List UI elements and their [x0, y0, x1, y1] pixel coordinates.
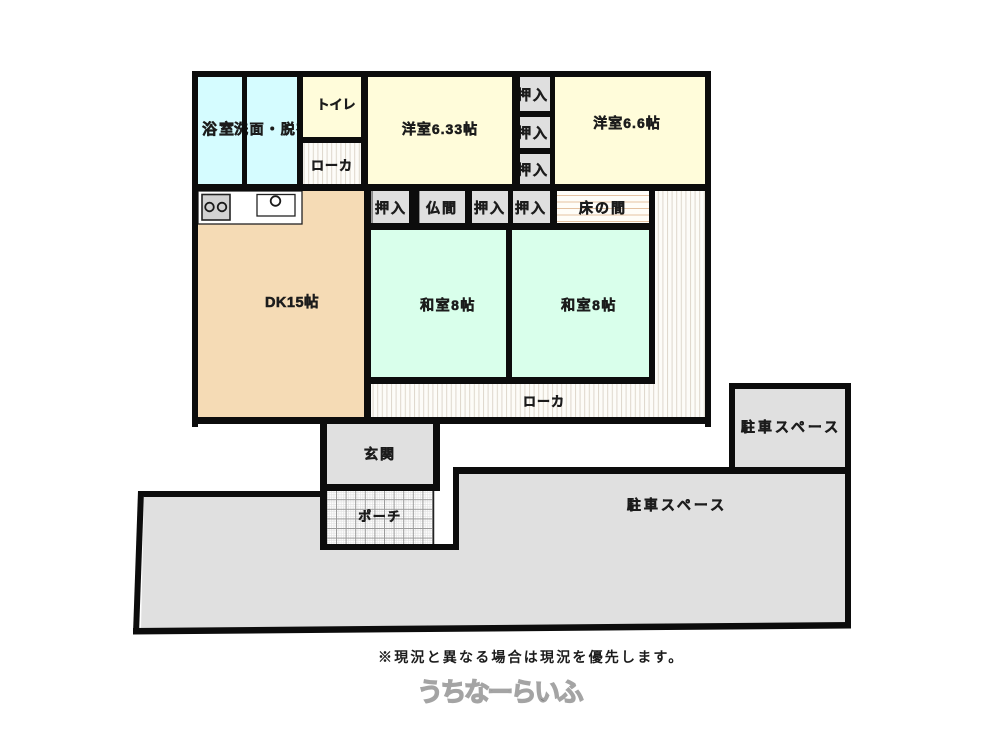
svg-text:トイレ: トイレ: [316, 97, 355, 112]
svg-text:玄関: 玄関: [364, 446, 396, 462]
svg-text:押入: 押入: [517, 87, 549, 103]
svg-text:うちなーらいふ: うちなーらいふ: [417, 677, 583, 707]
svg-text:洋室6.33帖: 洋室6.33帖: [402, 121, 478, 137]
svg-text:仏間: 仏間: [426, 200, 458, 216]
svg-text:ローカ: ローカ: [311, 158, 353, 173]
svg-text:押入: 押入: [517, 125, 549, 141]
svg-text:和室8帖: 和室8帖: [561, 297, 617, 313]
svg-text:押入: 押入: [375, 200, 407, 216]
svg-text:押入: 押入: [515, 200, 547, 216]
svg-text:※現況と異なる場合は現況を優先します。: ※現況と異なる場合は現況を優先します。: [378, 649, 684, 665]
svg-text:浴室: 浴室: [202, 120, 236, 138]
svg-text:和室8帖: 和室8帖: [420, 297, 476, 313]
svg-text:ローカ: ローカ: [523, 394, 565, 409]
svg-text:押入: 押入: [474, 200, 506, 216]
svg-text:押入: 押入: [517, 162, 549, 178]
svg-text:床の間: 床の間: [579, 200, 627, 216]
svg-text:駐車スペース: 駐車スペース: [741, 419, 841, 435]
svg-text:ポーチ: ポーチ: [358, 509, 402, 524]
svg-text:洋室6.6帖: 洋室6.6帖: [593, 115, 660, 131]
svg-text:駐車スペース: 駐車スペース: [627, 497, 727, 513]
svg-text:DK15帖: DK15帖: [265, 293, 319, 311]
